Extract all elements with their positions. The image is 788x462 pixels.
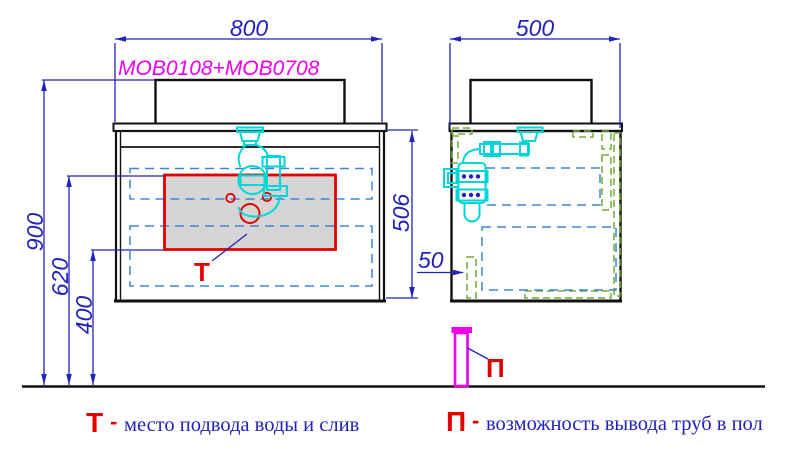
dim-500-label: 500 xyxy=(516,15,555,41)
front-backsplash xyxy=(156,80,345,127)
dim-620-label: 620 xyxy=(47,258,73,297)
legend-p-symbol: П xyxy=(446,406,466,437)
drain-zone-t-label: Т xyxy=(194,257,210,287)
model-code: MOB0108+MOB0708 xyxy=(118,57,320,80)
p-leader-line xyxy=(468,348,489,359)
legend-t-separator: - xyxy=(110,409,117,434)
legend-p-separator: - xyxy=(472,408,479,433)
arrow-icon xyxy=(609,36,620,42)
arrow-icon xyxy=(371,36,382,42)
dim-800-label: 800 xyxy=(230,15,269,41)
arrow-icon xyxy=(409,131,415,142)
side-cabinet-body xyxy=(452,131,621,301)
arrow-icon xyxy=(66,176,72,187)
arrow-icon xyxy=(450,36,461,42)
arrow-icon xyxy=(90,374,96,385)
dim-400-label: 400 xyxy=(71,296,97,335)
dim-900-label: 900 xyxy=(22,213,48,252)
front-view: Т xyxy=(114,80,387,301)
drain-zone-fill xyxy=(165,175,336,250)
floor-pipe-body xyxy=(455,333,468,386)
legend: Т - место подвода воды и слив П - возмож… xyxy=(86,406,763,438)
legend-t-description: место подвода воды и слив xyxy=(124,414,359,436)
floor-pipe: П xyxy=(452,327,505,386)
arrow-icon xyxy=(41,374,47,385)
technical-drawing-page: Т xyxy=(0,0,788,462)
side-backsplash xyxy=(471,80,592,127)
dim-50-label: 50 xyxy=(418,247,444,273)
arrow-icon xyxy=(41,80,47,91)
legend-p-description: возможность вывода труб в пол xyxy=(486,413,763,435)
legend-t-symbol: Т xyxy=(86,407,103,438)
side-view xyxy=(444,80,622,301)
arrow-icon xyxy=(115,36,126,42)
dim-506-label: 506 xyxy=(388,194,414,233)
arrow-icon xyxy=(409,287,415,298)
technical-drawing: Т xyxy=(0,0,788,462)
floor-pipe-p-label: П xyxy=(486,353,505,383)
arrow-icon xyxy=(90,250,96,261)
arrow-icon xyxy=(66,374,72,385)
